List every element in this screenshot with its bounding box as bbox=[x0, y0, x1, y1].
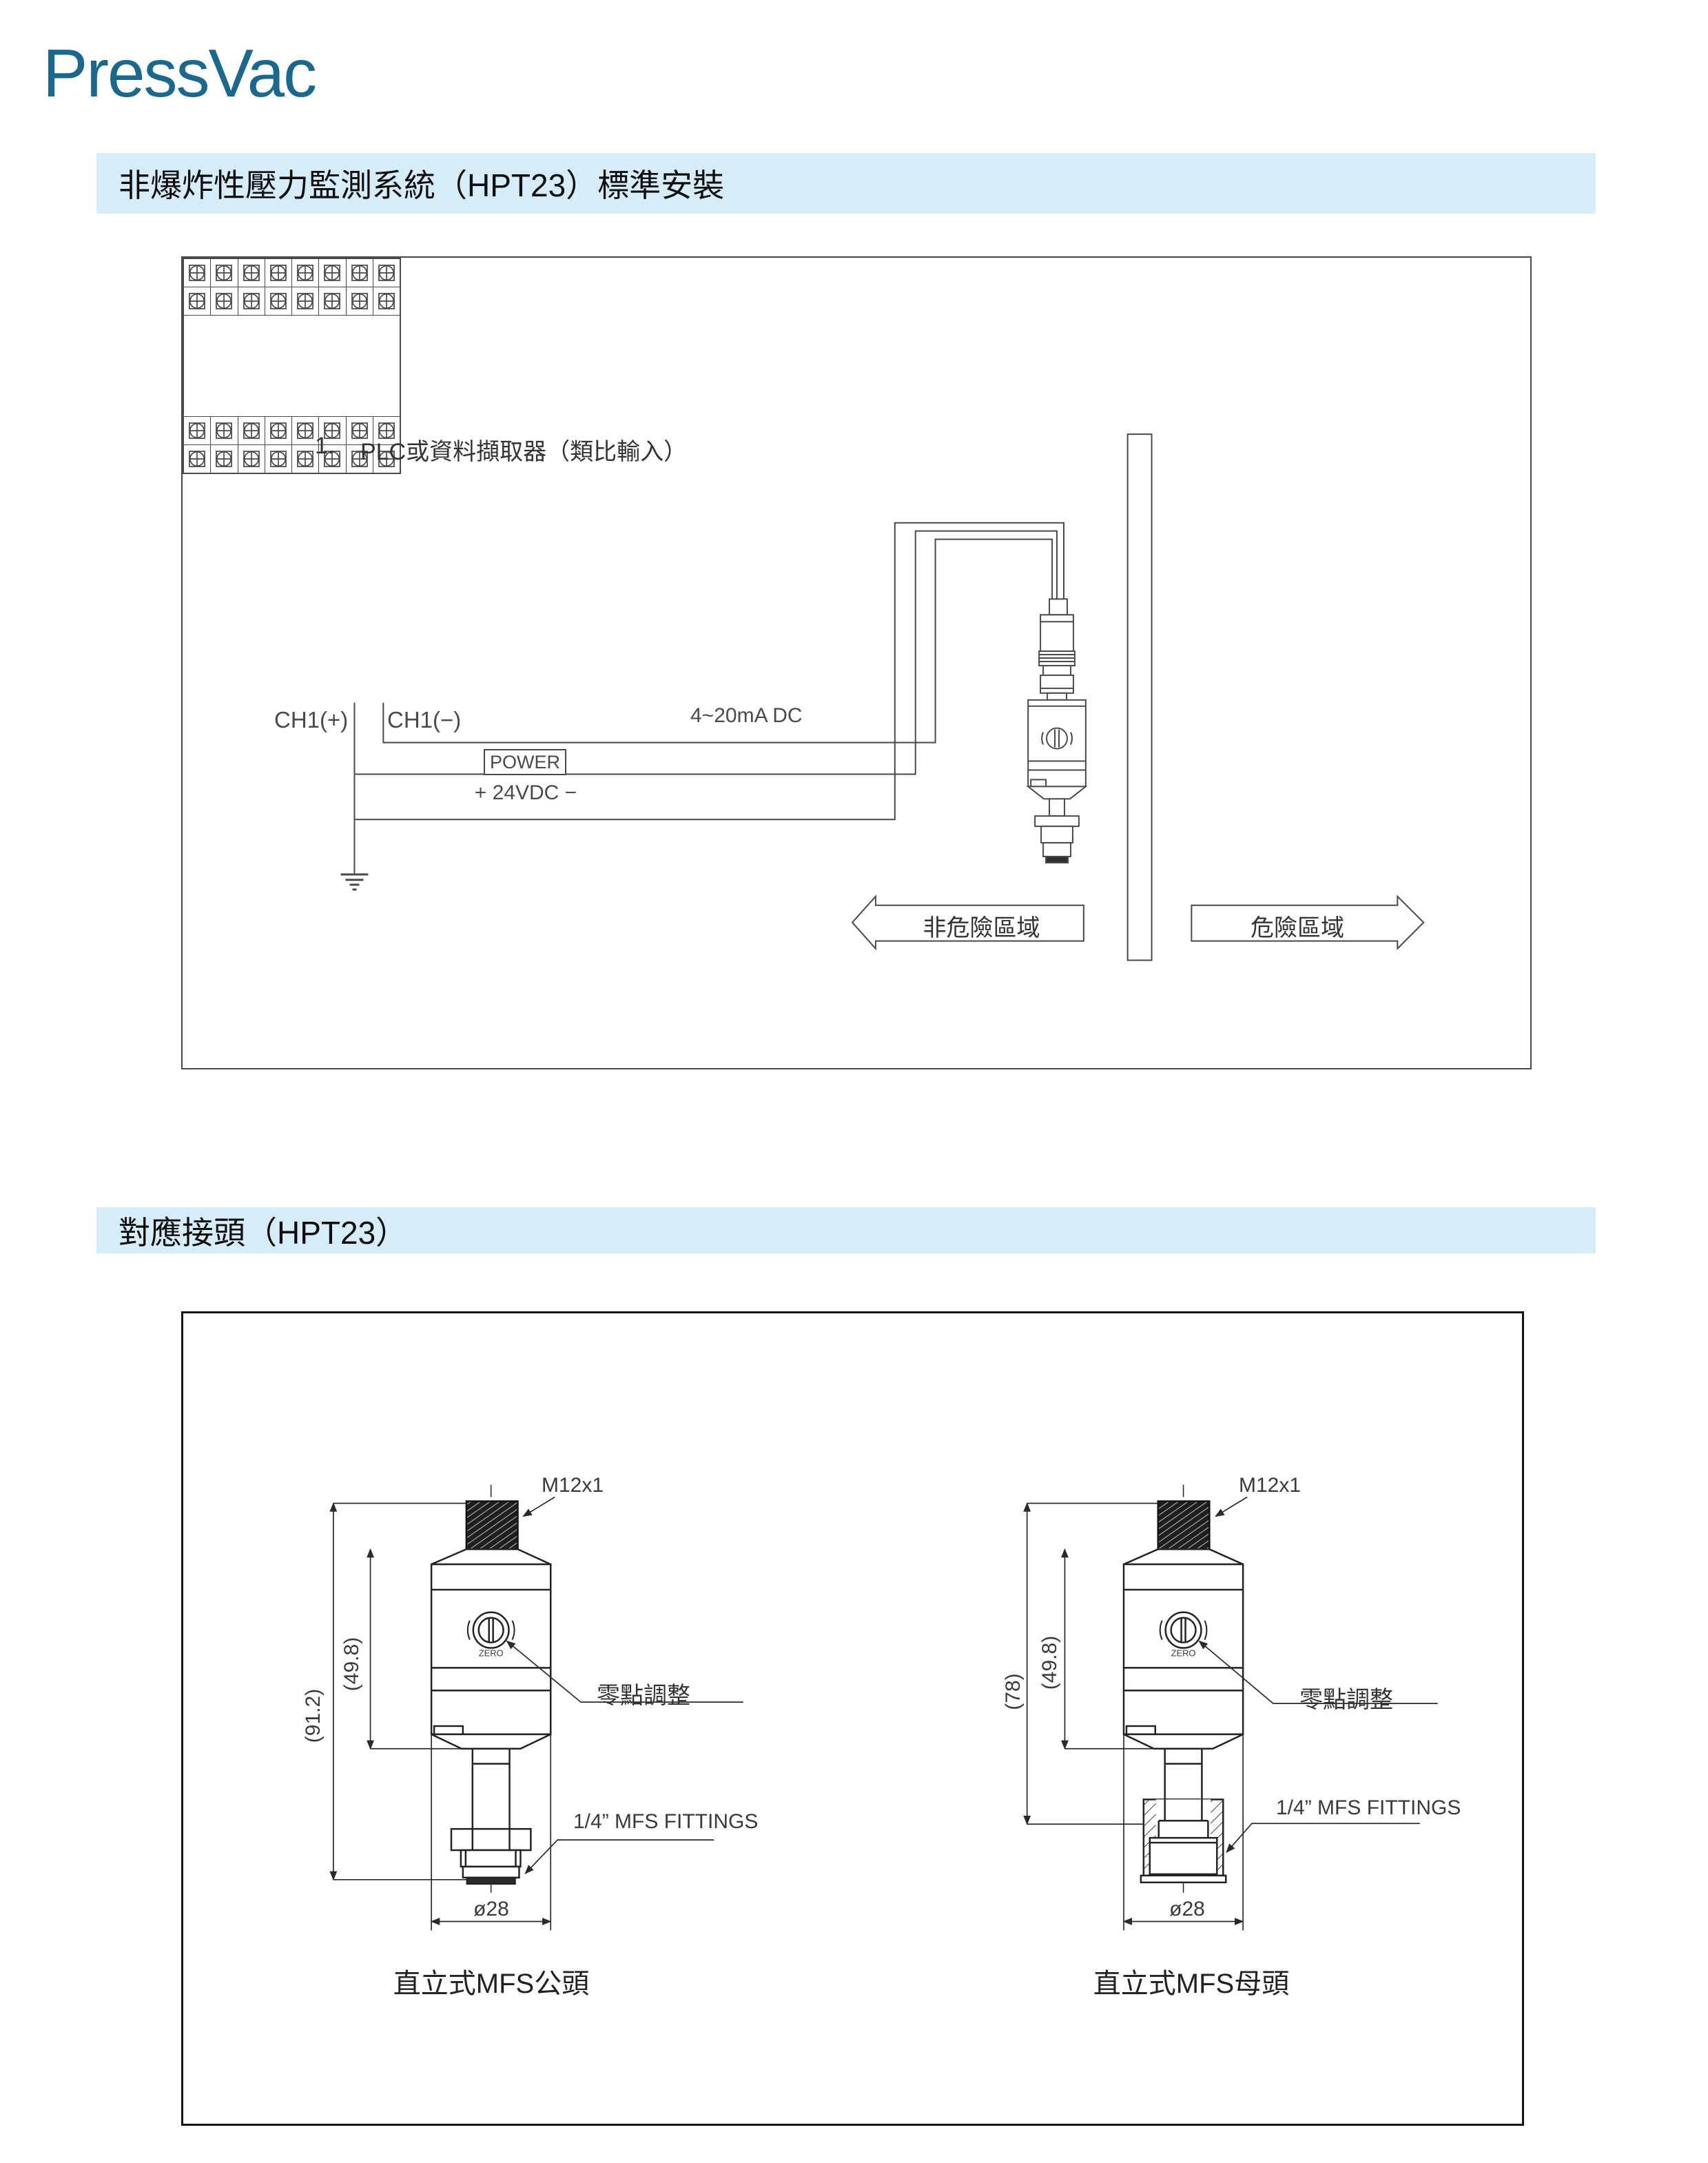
brand-logo: PressVac bbox=[43, 34, 316, 112]
dim-diameter-left: ø28 bbox=[457, 1898, 526, 1921]
datasheet-page: PressVac 非爆炸性壓力監測系統（HPT23）標準安裝 bbox=[0, 0, 1708, 2163]
thread-label-right: M12x1 bbox=[1239, 1474, 1301, 1497]
section2-header-band: 對應接頭（HPT23） bbox=[96, 1207, 1596, 1253]
ch1-plus-label: CH1(+) bbox=[274, 707, 348, 733]
earth-ground-icon bbox=[341, 874, 369, 890]
caption-right: 直立式MFS母頭 bbox=[1071, 1961, 1312, 2001]
zero-text: ZERO bbox=[479, 1648, 504, 1658]
zone-right-label: 危險區域 bbox=[1194, 908, 1401, 943]
zero-adjust-label-right: 零點調整 bbox=[1299, 1681, 1393, 1714]
male-unit-drawing: ZERO bbox=[431, 1485, 551, 1893]
power-label: POWER bbox=[490, 752, 560, 773]
m12-thread bbox=[466, 1501, 518, 1550]
caption-left: 直立式MFS公頭 bbox=[371, 1961, 612, 2001]
ch1-minus-label: CH1(−) bbox=[387, 707, 461, 733]
signal-label: 4~20mA DC bbox=[690, 704, 803, 728]
fitting-label-right: 1/4” MFS FITTINGS bbox=[1276, 1796, 1461, 1820]
zero-text: ZERO bbox=[1171, 1648, 1196, 1658]
dim-overall-right: (78) bbox=[1002, 1657, 1025, 1726]
zone-left-label: 非危險區域 bbox=[877, 908, 1086, 943]
fittings-drawing: ZERO bbox=[183, 1313, 1522, 2124]
wire-power bbox=[354, 531, 1057, 775]
fitting-label-left: 1/4” MFS FITTINGS bbox=[573, 1810, 758, 1834]
wire-shield bbox=[354, 523, 1063, 820]
power-box: POWER bbox=[484, 749, 566, 775]
dim-body-left: (49.8) bbox=[340, 1630, 364, 1699]
section1-title: 非爆炸性壓力監測系統（HPT23）標準安裝 bbox=[96, 161, 724, 206]
power-voltage-label: + 24VDC − bbox=[471, 781, 581, 805]
plc-item-number: 1. bbox=[315, 433, 334, 460]
dim-overall-left: (91.2) bbox=[302, 1681, 325, 1750]
zero-adjust-label-left: 零點調整 bbox=[597, 1677, 690, 1710]
thread-label-left: M12x1 bbox=[542, 1474, 604, 1497]
transmitter-drawing bbox=[1028, 599, 1086, 863]
figure-fittings: ZERO bbox=[181, 1311, 1524, 2126]
figure-standard-installation: 1. PLC或資料擷取器（類比輸入） CH1(+) CH1(−) 4~20mA … bbox=[181, 256, 1532, 1069]
section1-header-band: 非爆炸性壓力監測系統（HPT23）標準安裝 bbox=[96, 153, 1596, 214]
dim-diameter-right: ø28 bbox=[1153, 1898, 1222, 1921]
wall bbox=[1128, 434, 1152, 960]
dim-body-right: (49.8) bbox=[1038, 1628, 1062, 1697]
section2-title: 對應接頭（HPT23） bbox=[96, 1208, 407, 1253]
m12-thread bbox=[1158, 1501, 1210, 1550]
installation-diagram bbox=[183, 258, 1530, 1068]
plc-label: PLC或資料擷取器（類比輸入） bbox=[360, 433, 687, 467]
female-unit-drawing: ZERO bbox=[1124, 1485, 1243, 1893]
